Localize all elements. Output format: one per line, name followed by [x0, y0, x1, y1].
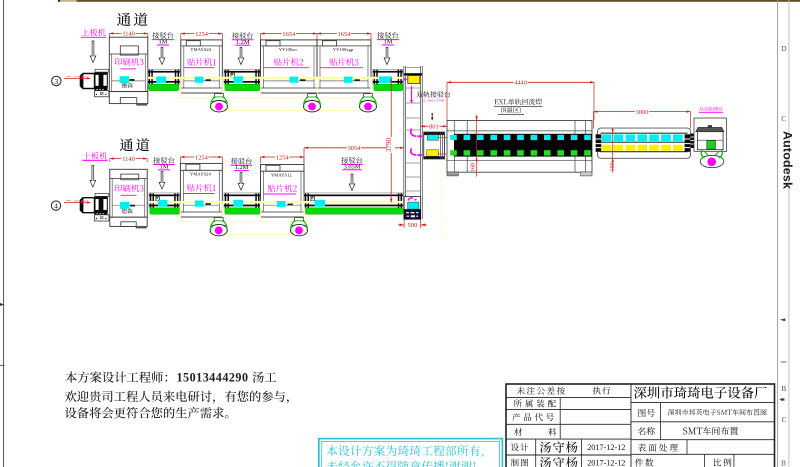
svg-text:YMAYS12: YMAYS12	[271, 172, 292, 177]
svg-text:YL-9401-YNB: YL-9401-YNB	[422, 99, 445, 103]
svg-text:4: 4	[54, 201, 58, 210]
svg-text:160: 160	[609, 162, 616, 171]
svg-text:1254: 1254	[276, 154, 290, 161]
svg-text:B: B	[781, 459, 786, 467]
svg-text:2017-12-12: 2017-12-12	[587, 459, 625, 467]
svg-text:15013444290: 15013444290	[177, 371, 249, 385]
svg-text:1654: 1654	[338, 31, 352, 38]
svg-text:YMAYS24: YMAYS24	[190, 172, 211, 177]
svg-text:2017-12-12: 2017-12-12	[587, 443, 625, 452]
svg-text:D: D	[781, 44, 787, 53]
svg-text:3000: 3000	[636, 109, 649, 116]
svg-text:Autodesk: Autodesk	[780, 131, 794, 189]
svg-text:3054: 3054	[348, 145, 362, 152]
svg-text:3790: 3790	[385, 138, 393, 153]
svg-text:YY100xgp: YY100xgp	[333, 47, 354, 52]
svg-text:160: 160	[469, 163, 476, 172]
svg-text:1654: 1654	[282, 31, 296, 38]
svg-text:YMAYS24: YMAYS24	[190, 47, 211, 52]
svg-text:500: 500	[407, 222, 418, 229]
svg-text:C: C	[781, 415, 786, 424]
svg-text:1140: 1140	[122, 156, 135, 163]
svg-text:1254: 1254	[195, 154, 209, 161]
svg-text:1140: 1140	[122, 31, 135, 38]
svg-text:801: 801	[429, 124, 439, 131]
svg-text:YY100xo: YY100xo	[279, 47, 298, 52]
svg-text:1254: 1254	[195, 31, 209, 38]
svg-text:C: C	[781, 114, 786, 123]
svg-text:B: B	[781, 384, 786, 393]
svg-text:3: 3	[54, 77, 58, 86]
svg-text:4440: 4440	[514, 80, 527, 87]
